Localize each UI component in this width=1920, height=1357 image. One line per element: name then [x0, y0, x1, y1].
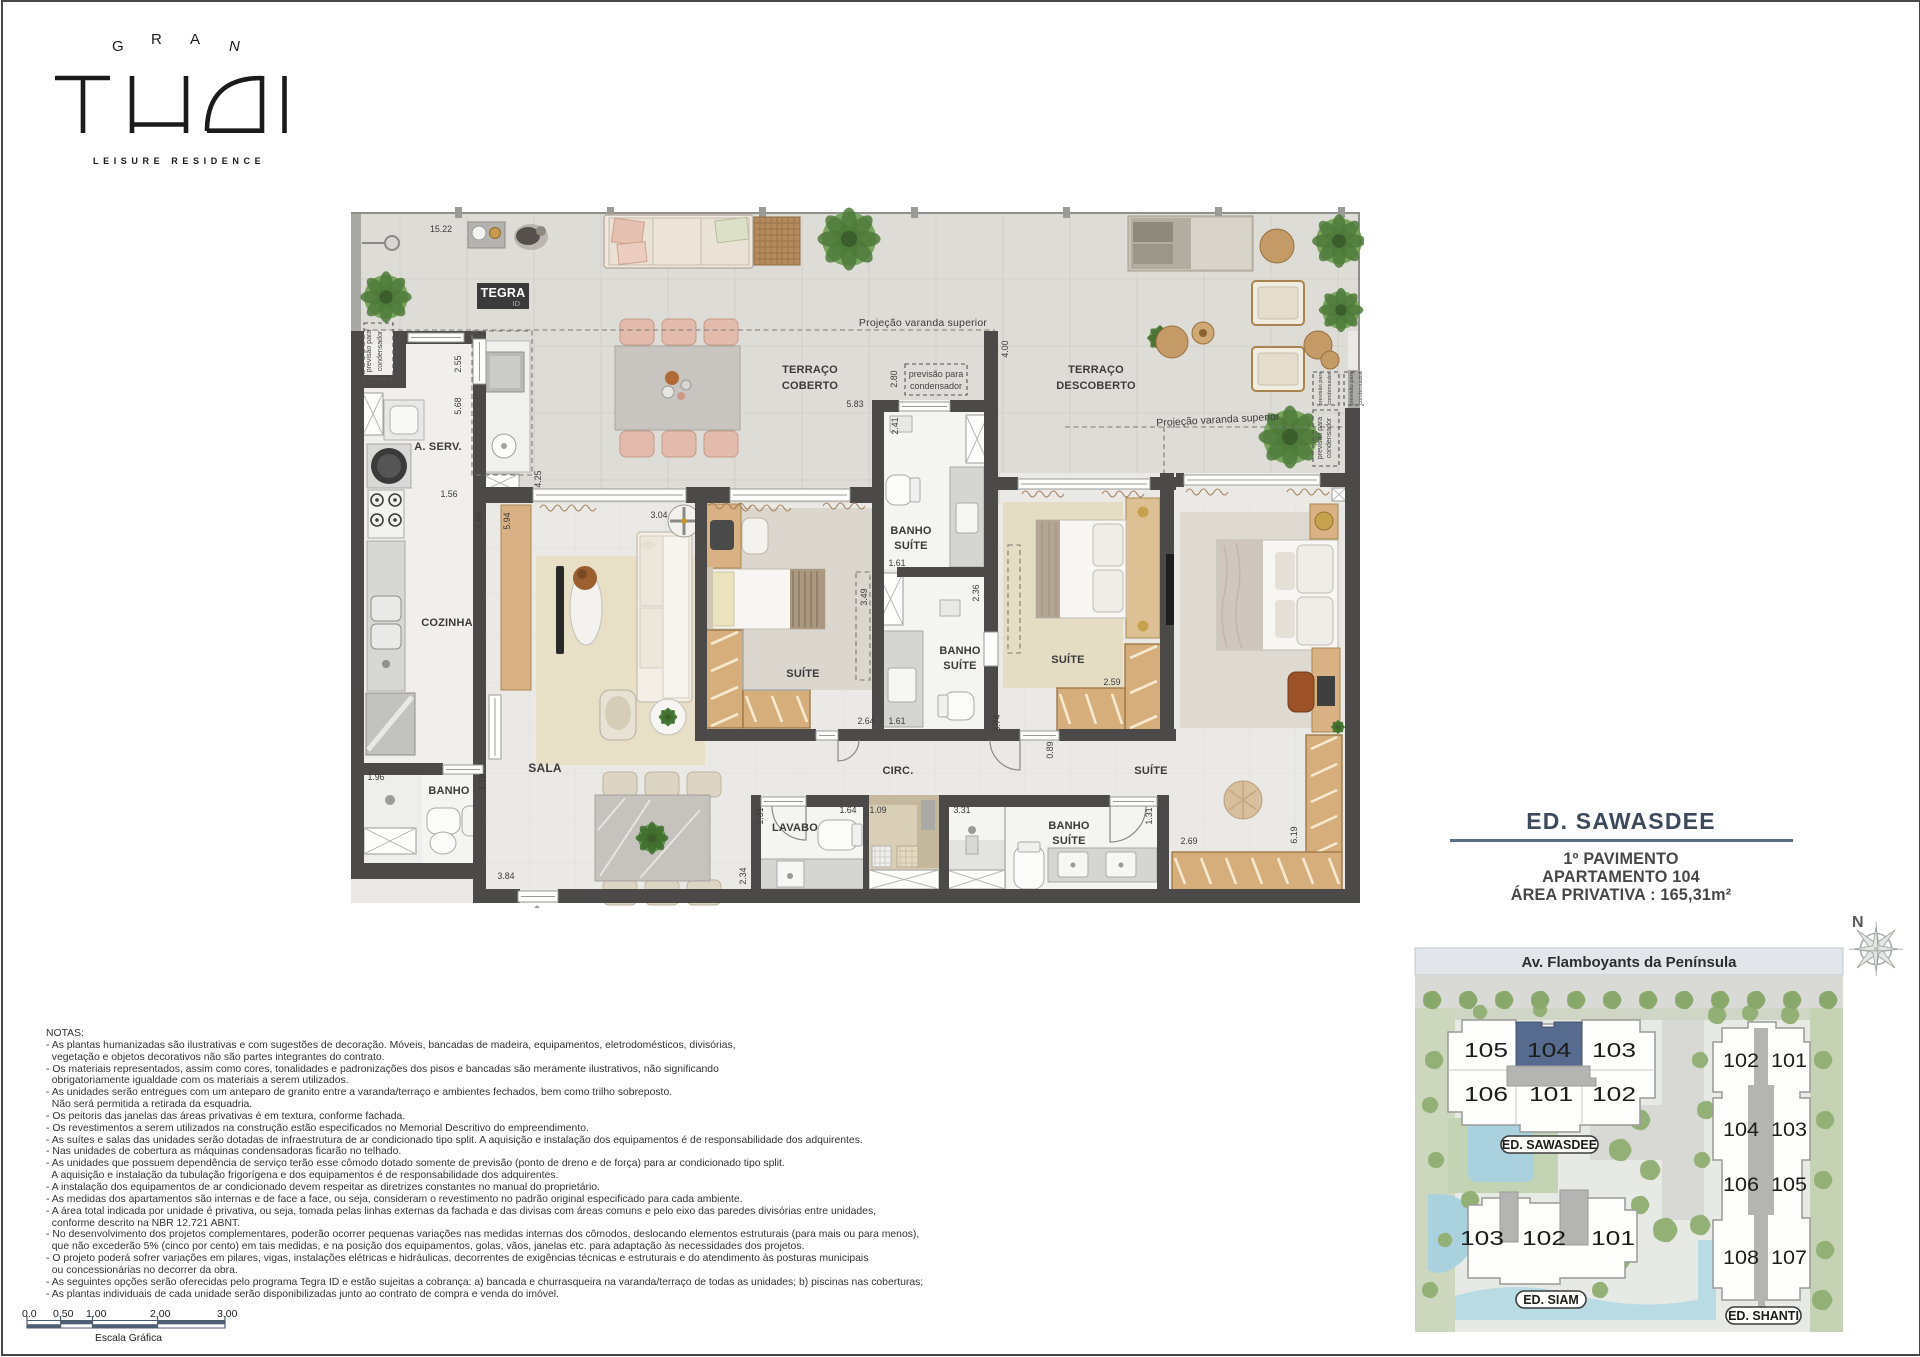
svg-text:2.00: 2.00	[150, 1308, 171, 1320]
svg-text:1.00: 1.00	[86, 1308, 107, 1320]
svg-text:5.83: 5.83	[846, 399, 863, 409]
svg-text:104: 104	[1527, 1040, 1571, 1062]
svg-text:103: 103	[1460, 1228, 1504, 1250]
svg-text:1.31: 1.31	[755, 807, 765, 824]
svg-text:102: 102	[1592, 1084, 1636, 1106]
svg-text:SUÍTE: SUÍTE	[894, 539, 927, 552]
svg-text:ED. SHANTI: ED. SHANTI	[1728, 1309, 1799, 1323]
svg-text:BANHO: BANHO	[939, 645, 981, 657]
svg-text:condensador: condensador	[1327, 372, 1333, 404]
svg-text:DESCOBERTO: DESCOBERTO	[1056, 380, 1136, 392]
svg-text:previsão para: previsão para	[909, 369, 964, 379]
svg-text:G: G	[112, 38, 124, 55]
svg-text:2.59: 2.59	[1103, 677, 1120, 687]
svg-text:6.19: 6.19	[1289, 826, 1299, 843]
svg-text:3.49: 3.49	[859, 588, 869, 605]
svg-text:3.74: 3.74	[992, 714, 1002, 731]
svg-text:previsão para: previsão para	[1318, 371, 1324, 406]
svg-text:ED. SAWASDEE: ED. SAWASDEE	[1502, 1138, 1597, 1152]
svg-text:condensador: condensador	[1326, 417, 1333, 458]
svg-text:2.55: 2.55	[453, 355, 463, 372]
svg-text:CIRC.: CIRC.	[883, 765, 914, 777]
svg-text:ED. SIAM: ED. SIAM	[1523, 1293, 1579, 1307]
svg-text:102: 102	[1522, 1228, 1566, 1250]
svg-text:2.36: 2.36	[971, 584, 981, 601]
svg-text:101: 101	[1771, 1051, 1807, 1072]
svg-text:condensador: condensador	[910, 381, 962, 391]
svg-text:3.04: 3.04	[650, 510, 667, 520]
svg-text:A. SERV.: A. SERV.	[414, 441, 461, 453]
svg-text:103: 103	[1771, 1120, 1807, 1141]
svg-text:3.31: 3.31	[953, 805, 970, 815]
svg-text:TERRAÇO: TERRAÇO	[782, 364, 838, 376]
svg-text:1.56: 1.56	[440, 489, 457, 499]
svg-text:15.22: 15.22	[430, 224, 452, 234]
svg-text:102: 102	[1723, 1051, 1759, 1072]
svg-text:0.89: 0.89	[1045, 741, 1055, 758]
svg-text:1.19: 1.19	[477, 773, 487, 790]
svg-text:101: 101	[1529, 1084, 1573, 1106]
svg-text:3.00: 3.00	[217, 1308, 238, 1320]
svg-text:Projeção varanda superior: Projeção varanda superior	[859, 317, 987, 329]
svg-text:2.69: 2.69	[1180, 836, 1197, 846]
svg-text:ID: ID	[513, 299, 521, 308]
svg-text:condensador: condensador	[377, 330, 384, 371]
svg-text:107: 107	[1771, 1248, 1807, 1269]
svg-text:108: 108	[1723, 1248, 1759, 1269]
svg-text:1.61: 1.61	[888, 716, 905, 726]
svg-text:1.09: 1.09	[869, 805, 886, 815]
svg-text:2.64: 2.64	[857, 716, 874, 726]
svg-text:LEISURE RESIDENCE: LEISURE RESIDENCE	[93, 156, 265, 166]
svg-text:TEGRA: TEGRA	[481, 286, 526, 300]
svg-text:R: R	[151, 31, 162, 48]
svg-text:N: N	[229, 38, 240, 55]
svg-text:5.68: 5.68	[453, 397, 463, 414]
svg-text:3.98: 3.98	[474, 512, 484, 529]
svg-text:101: 101	[1591, 1228, 1635, 1250]
svg-text:106: 106	[1723, 1175, 1759, 1196]
svg-text:previsão para: previsão para	[1349, 371, 1355, 406]
svg-text:2.41: 2.41	[890, 417, 900, 434]
svg-text:103: 103	[1592, 1040, 1636, 1062]
svg-text:1.61: 1.61	[888, 558, 905, 568]
svg-text:SALA: SALA	[528, 761, 562, 775]
svg-text:condensador: condensador	[1358, 372, 1364, 404]
svg-text:0.0: 0.0	[22, 1308, 37, 1320]
svg-text:1.96: 1.96	[367, 772, 384, 782]
svg-text:BANHO: BANHO	[428, 785, 470, 797]
svg-text:Escala Gráfica: Escala Gráfica	[95, 1333, 162, 1344]
svg-text:2.34: 2.34	[738, 867, 748, 884]
svg-text:1.64: 1.64	[839, 805, 856, 815]
svg-text:COBERTO: COBERTO	[782, 380, 838, 392]
svg-text:SUÍTE: SUÍTE	[1134, 764, 1167, 777]
svg-text:previsão para: previsão para	[1317, 417, 1324, 460]
svg-text:BANHO: BANHO	[890, 525, 932, 537]
svg-text:106: 106	[1464, 1084, 1508, 1106]
svg-text:5.94: 5.94	[502, 512, 512, 529]
svg-text:SUÍTE: SUÍTE	[786, 667, 819, 680]
svg-text:2.80: 2.80	[889, 370, 899, 387]
svg-text:BANHO: BANHO	[1048, 820, 1090, 832]
svg-text:3.84: 3.84	[497, 871, 514, 881]
svg-text:105: 105	[1771, 1175, 1807, 1196]
svg-text:N: N	[1852, 914, 1864, 931]
svg-text:4.25: 4.25	[533, 470, 543, 487]
svg-text:0.50: 0.50	[53, 1308, 74, 1320]
svg-text:COZINHA: COZINHA	[421, 617, 473, 629]
svg-text:previsão para: previsão para	[366, 330, 373, 373]
svg-text:SUÍTE: SUÍTE	[1051, 653, 1084, 666]
svg-text:SUÍTE: SUÍTE	[943, 659, 976, 672]
svg-text:1.31: 1.31	[1144, 807, 1154, 824]
svg-text:A: A	[190, 31, 200, 48]
svg-text:Av. Flamboyants da Península: Av. Flamboyants da Península	[1521, 954, 1737, 971]
svg-text:105: 105	[1464, 1040, 1508, 1062]
svg-text:LAVABO: LAVABO	[772, 822, 818, 834]
svg-text:4.00: 4.00	[1000, 340, 1010, 357]
svg-text:SUÍTE: SUÍTE	[1052, 834, 1085, 847]
svg-text:104: 104	[1723, 1120, 1759, 1141]
svg-text:TERRAÇO: TERRAÇO	[1068, 364, 1124, 376]
